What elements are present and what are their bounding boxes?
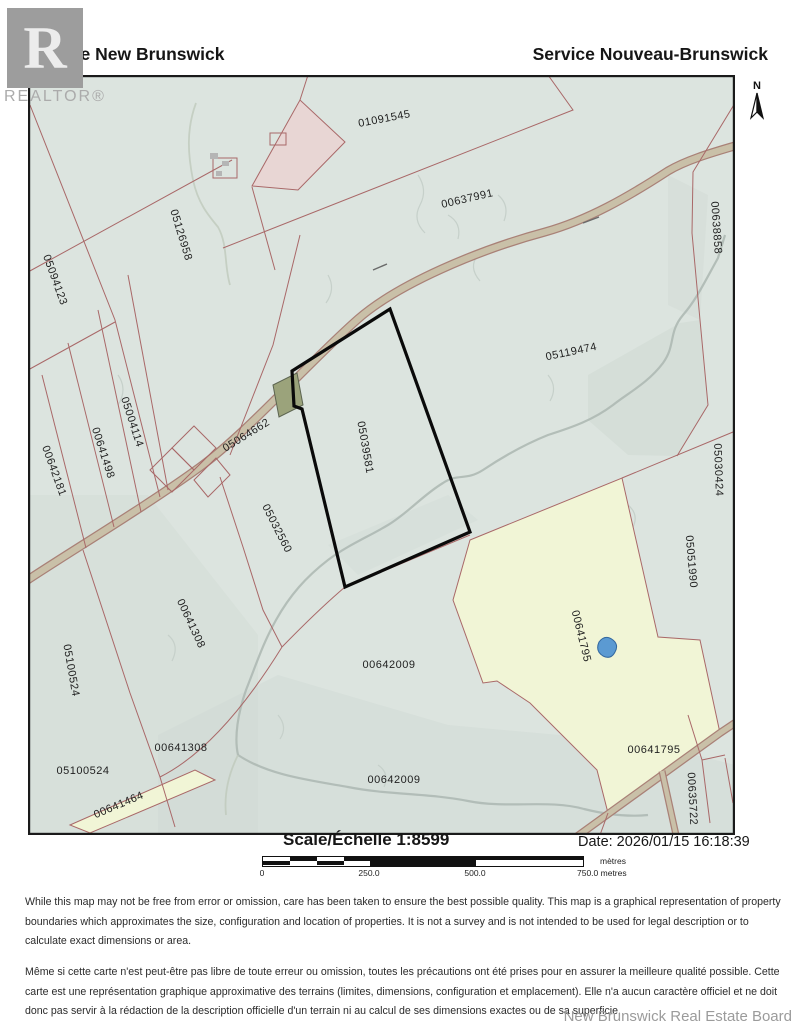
date-label: Date: 2026/01/15 16:18:39	[578, 834, 750, 850]
realtor-logo-letter: R	[23, 18, 66, 78]
building	[216, 171, 222, 176]
compass-arrow-icon	[748, 92, 766, 120]
scale-tick-0: 0	[260, 868, 265, 878]
map-sheet: R REALTOR® Service New Brunswick Service…	[0, 0, 800, 1036]
scale-tick-250: 250.0	[358, 868, 379, 878]
scale-tick-750: 750.0 metres	[577, 868, 627, 878]
board-footer: New Brunswick Real Estate Board	[564, 1008, 792, 1025]
building	[210, 153, 218, 159]
pond	[598, 637, 617, 657]
realtor-logo: R	[7, 8, 83, 88]
north-arrow: N	[741, 80, 773, 125]
north-label: N	[741, 80, 773, 92]
parcel-label-00642009: 00642009	[363, 659, 416, 671]
scale-label: Scale/Échelle 1:8599	[283, 830, 449, 850]
parcel-label-05100524: 05100524	[57, 765, 110, 777]
property-map: 0109154500637991006388580512695805094123…	[28, 75, 735, 835]
building	[222, 161, 229, 166]
parcel-label-00641308: 00641308	[155, 742, 208, 754]
scale-bar	[262, 856, 584, 867]
scale-unit: mètres	[600, 856, 626, 866]
disclaimer-english: While this map may not be free from erro…	[25, 893, 790, 952]
parcel-label-00641795: 00641795	[628, 744, 681, 756]
parcel-label-00642009: 00642009	[368, 774, 421, 786]
parcel-label-05030424: 05030424	[711, 443, 725, 496]
realtor-wordmark: REALTOR®	[4, 88, 106, 106]
map-canvas: 0109154500637991006388580512695805094123…	[28, 75, 735, 835]
scale-tick-500: 500.0	[464, 868, 485, 878]
title-french: Service Nouveau-Brunswick	[533, 44, 768, 65]
